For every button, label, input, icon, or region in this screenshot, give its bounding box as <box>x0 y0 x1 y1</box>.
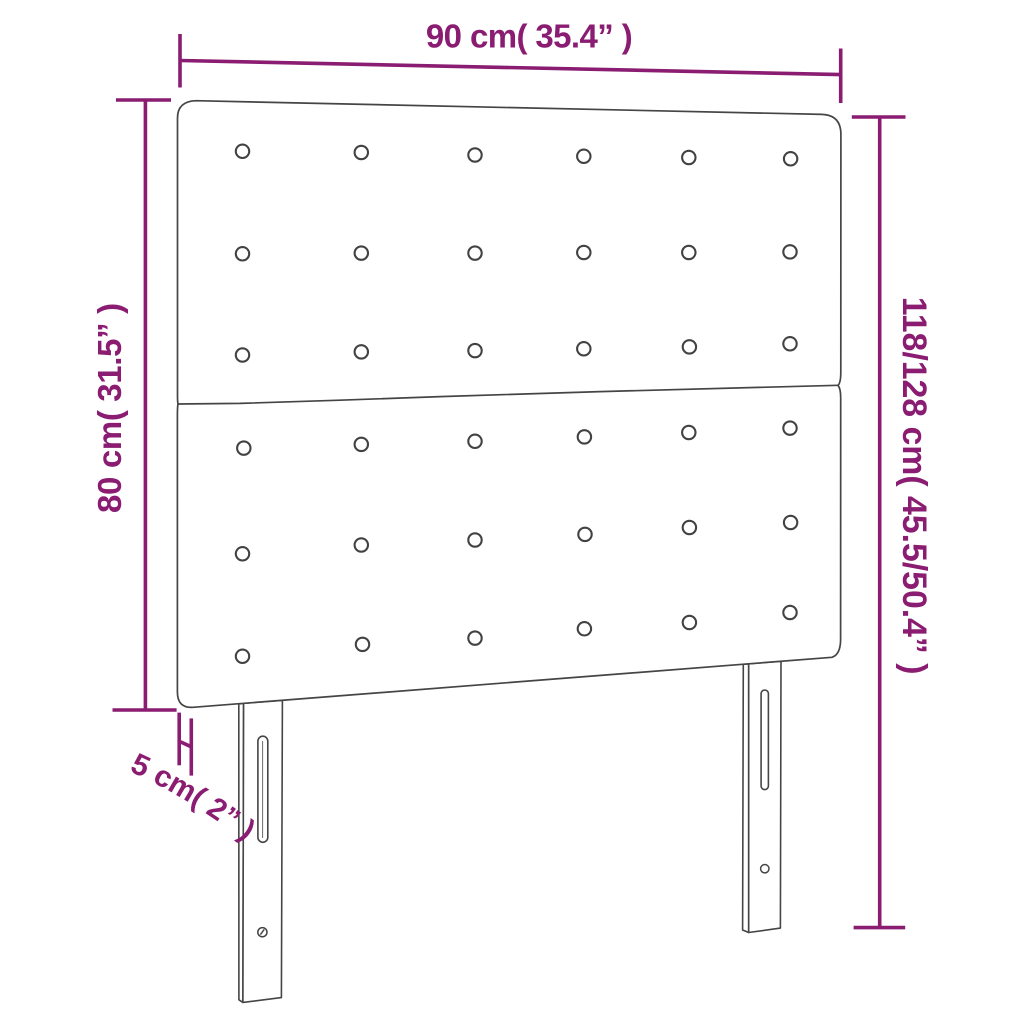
svg-text:90 cm( 35.4” ): 90 cm( 35.4” ) <box>426 18 632 55</box>
svg-text:118/128 cm( 45.5/50.4” ): 118/128 cm( 45.5/50.4” ) <box>895 297 933 675</box>
svg-text:80 cm( 31.5” ): 80 cm( 31.5” ) <box>91 303 128 513</box>
